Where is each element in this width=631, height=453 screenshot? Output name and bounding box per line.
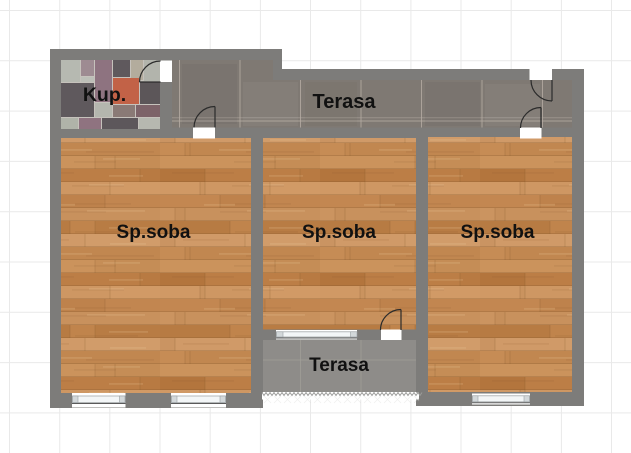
- svg-text:Sp.soba: Sp.soba: [461, 222, 535, 243]
- svg-text:Terasa: Terasa: [309, 355, 369, 376]
- svg-text:Kup.: Kup.: [83, 84, 126, 106]
- svg-text:Sp.soba: Sp.soba: [302, 222, 376, 243]
- svg-text:Terasa: Terasa: [312, 91, 376, 113]
- svg-text:Sp.soba: Sp.soba: [117, 222, 191, 243]
